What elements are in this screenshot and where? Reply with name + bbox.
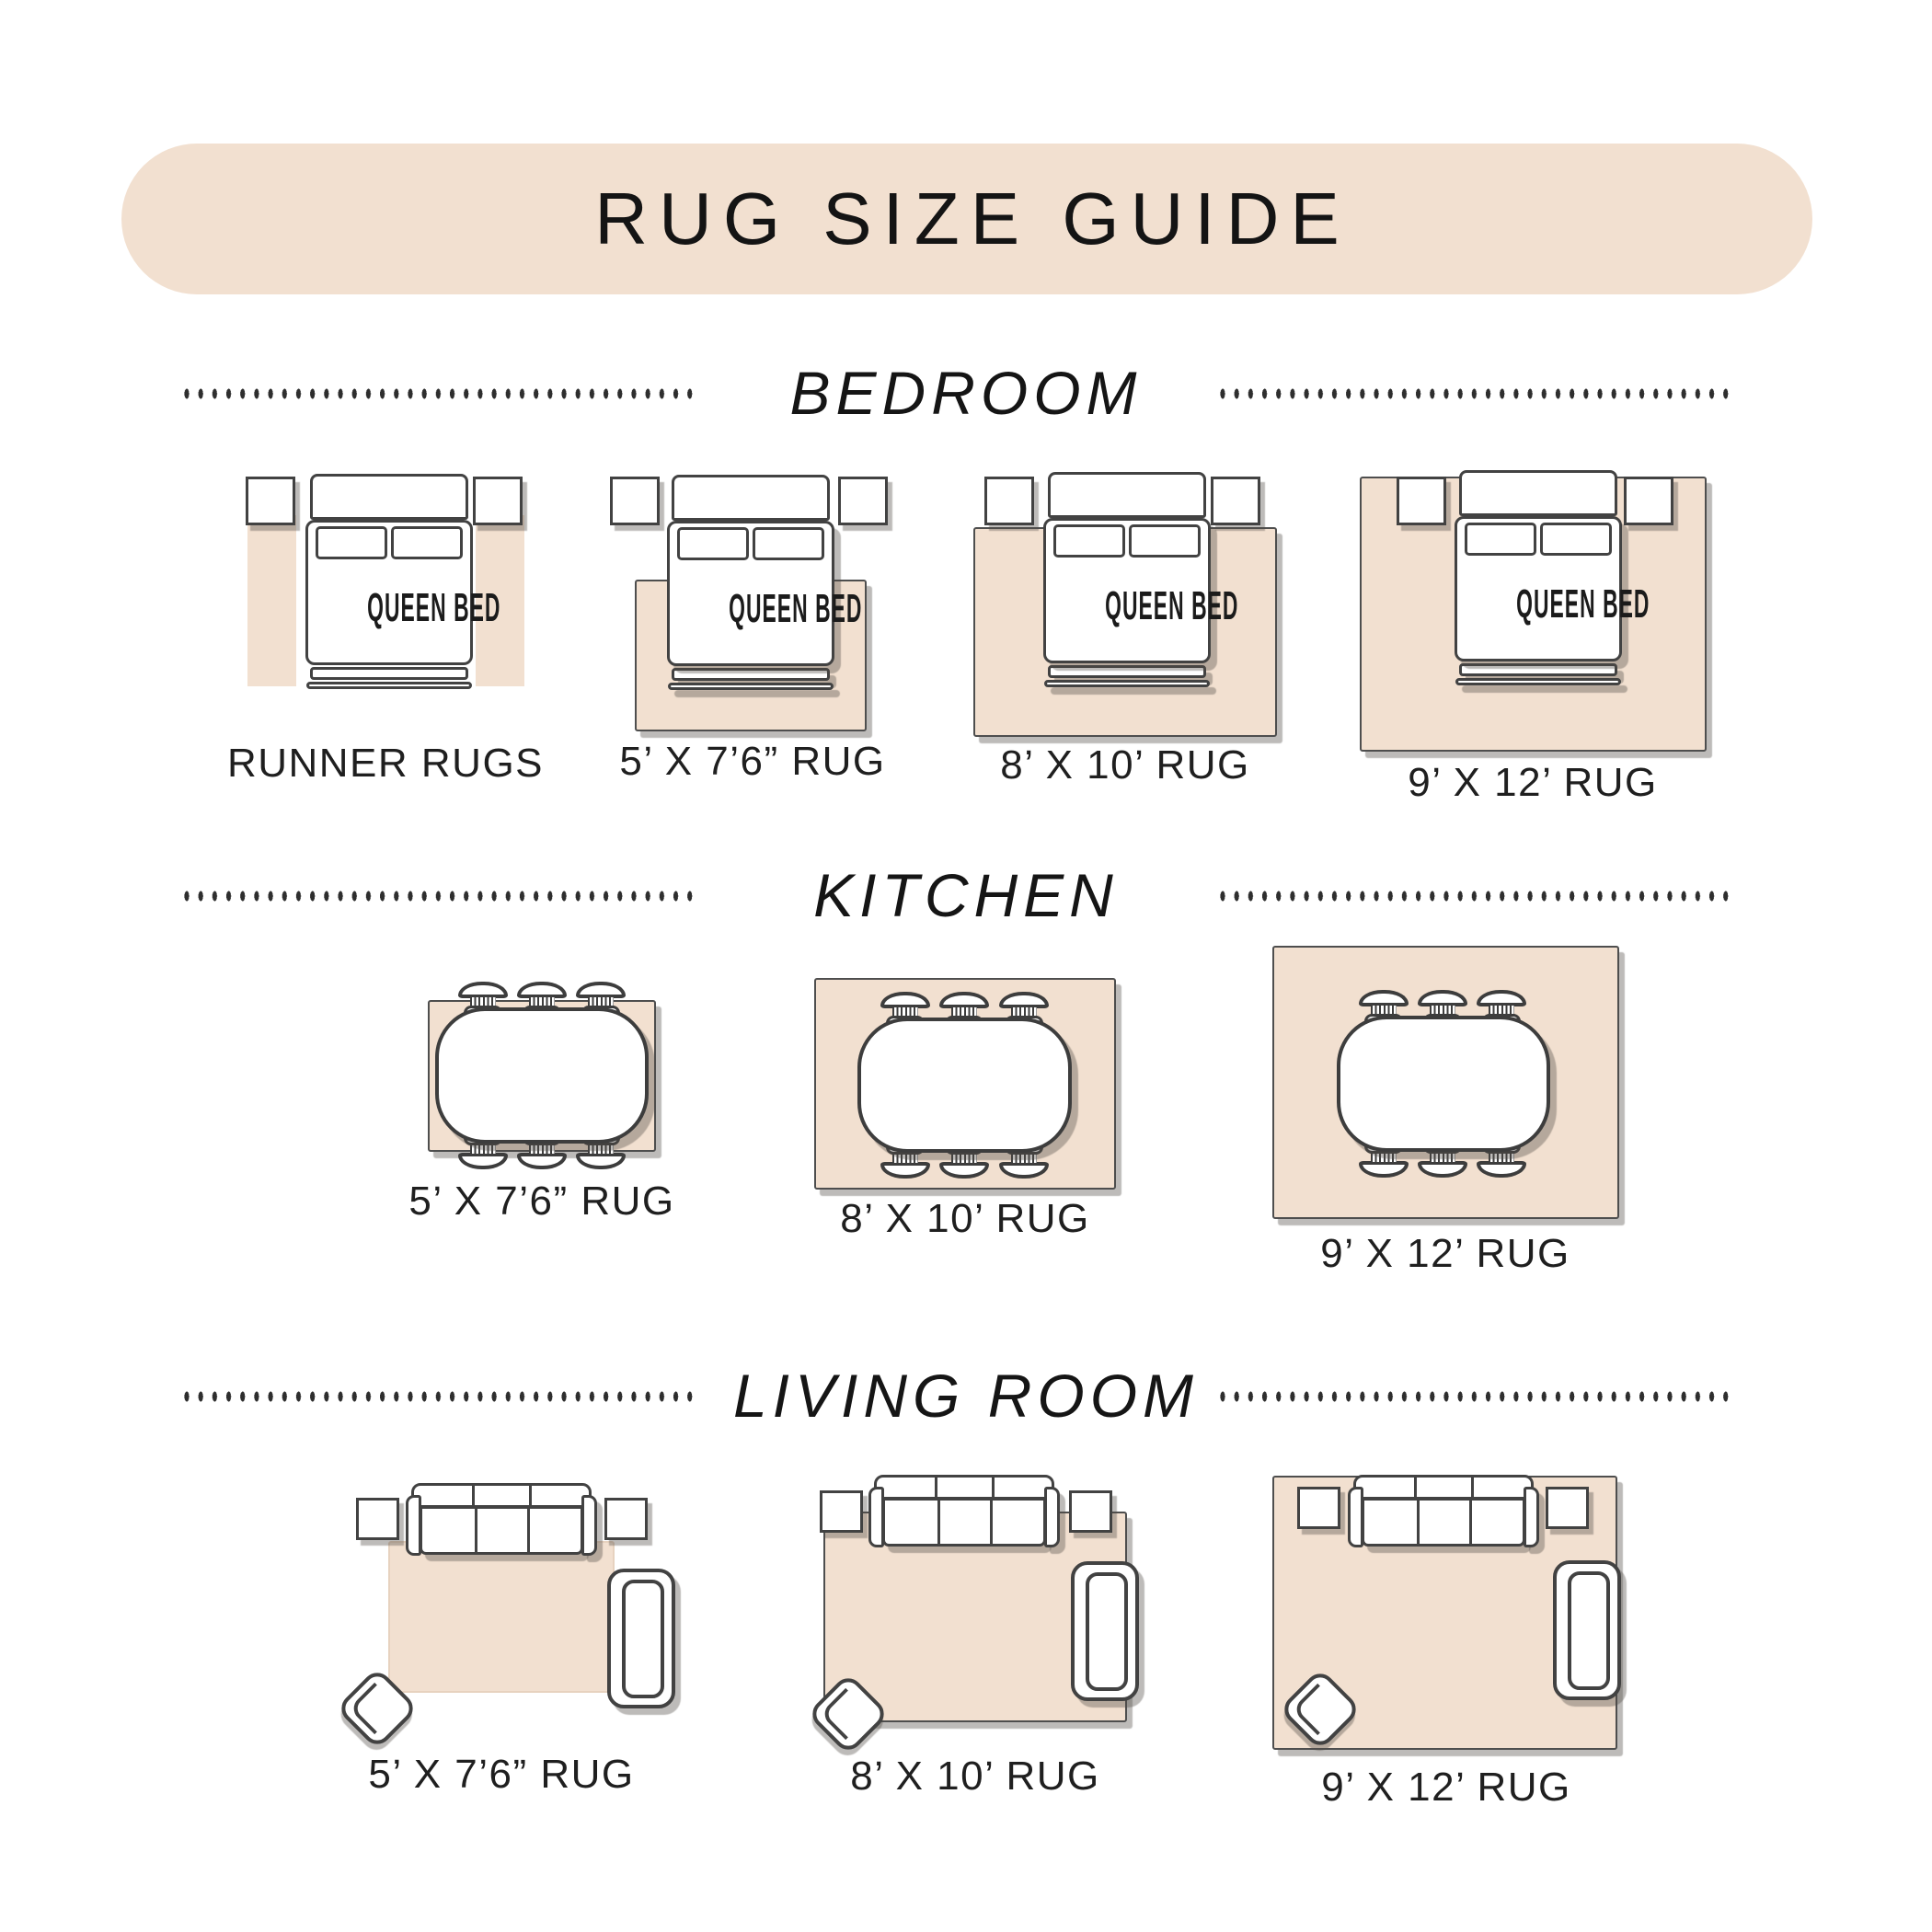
sofa-arm (1524, 1487, 1539, 1547)
queen-bed: QUEEN BED (305, 474, 473, 687)
nightstand (838, 477, 888, 525)
chair-back-icon (999, 1162, 1049, 1179)
chair-back-icon (576, 1153, 626, 1169)
chair-back-icon (1477, 1161, 1526, 1178)
nightstand (473, 477, 523, 525)
chaise-seat (1568, 1571, 1610, 1690)
nightstand (1624, 477, 1673, 525)
rug-size-guide: RUG SIZE GUIDE BEDROOM QUEEN BED RUNNER … (0, 0, 1932, 1932)
bed-pillow (316, 526, 387, 559)
runner-rug-left (247, 515, 296, 686)
chair-back-icon (517, 1153, 567, 1169)
chaise-chair (1553, 1560, 1621, 1700)
sofa-arm (1348, 1487, 1363, 1547)
accent-chair-back (349, 1683, 401, 1735)
dining-table (857, 1018, 1072, 1153)
living-rug-5x76 (388, 1541, 615, 1693)
cushion-divider (990, 1501, 993, 1544)
bed-pillow (753, 527, 824, 560)
chair-back-icon (939, 992, 989, 1008)
nightstand (246, 477, 295, 525)
nightstand (1397, 477, 1446, 525)
bed-pillow (1465, 523, 1536, 556)
cushion-divider (1414, 1478, 1417, 1497)
bed-headboard (1048, 472, 1206, 518)
chair-back-icon (1418, 1161, 1467, 1178)
chair-cushion-icon (588, 1144, 614, 1154)
chair-cushion-icon (1430, 1153, 1455, 1162)
size-label: 5’ X 7’6” RUG (244, 1752, 759, 1798)
chair-back-icon (880, 992, 930, 1008)
section-heading-living-room: LIVING ROOM (699, 1359, 1233, 1432)
chair-back-icon (576, 982, 626, 998)
bed-label: QUEEN BED (667, 586, 834, 632)
dotted-divider-right (1216, 1390, 1733, 1403)
cushion-divider (992, 1478, 995, 1497)
chaise-chair (1071, 1561, 1139, 1701)
chair-back-icon (999, 992, 1049, 1008)
section-heading-kitchen: KITCHEN (699, 858, 1233, 932)
cushion-divider (529, 1486, 532, 1505)
sofa-arm (1044, 1487, 1060, 1547)
bed-footboard-rail (1455, 678, 1621, 685)
sofa-back (411, 1483, 592, 1508)
nightstand (984, 477, 1034, 525)
bed-pillow (1540, 523, 1612, 556)
page-title: RUG SIZE GUIDE (594, 177, 1350, 261)
side-table (1069, 1490, 1112, 1533)
bed-footboard (310, 667, 468, 680)
chair-back-icon (1359, 1161, 1409, 1178)
chair-back-icon (1359, 990, 1409, 1006)
sofa-back (1353, 1475, 1534, 1500)
nightstand (610, 477, 660, 525)
chair-back-icon (517, 982, 567, 998)
sofa-seat (882, 1498, 1046, 1547)
dotted-divider-left (180, 1390, 699, 1403)
side-table (356, 1498, 399, 1540)
chair-back-icon (458, 1153, 508, 1169)
nightstand (1211, 477, 1260, 525)
side-table (604, 1498, 648, 1540)
dotted-divider-left (180, 387, 699, 400)
bed-headboard (1459, 470, 1617, 516)
chair-cushion-icon (1489, 1153, 1514, 1162)
side-table (1297, 1487, 1340, 1529)
dining-table (435, 1007, 649, 1144)
cushion-divider (1471, 1478, 1474, 1497)
size-label: 9’ X 12’ RUG (1188, 1231, 1703, 1277)
cushion-divider (937, 1501, 940, 1544)
chair-cushion-icon (892, 1154, 918, 1163)
chaise-seat (1086, 1572, 1128, 1691)
cushion-divider (475, 1509, 477, 1552)
chair-cushion-icon (470, 1144, 496, 1154)
sofa-seat (1362, 1498, 1525, 1547)
cushion-divider (1417, 1501, 1420, 1544)
cushion-divider (935, 1478, 937, 1497)
sofa-arm (868, 1487, 884, 1547)
dotted-divider-left (180, 890, 699, 903)
bed-footboard-rail (306, 682, 472, 689)
dotted-divider-right (1216, 890, 1733, 903)
chaise-chair (607, 1569, 675, 1708)
bed-footboard-rail (1044, 680, 1210, 687)
chair-cushion-icon (529, 1144, 555, 1154)
chair-back-icon (880, 1162, 930, 1179)
bed-headboard (310, 474, 468, 520)
side-table (1546, 1487, 1589, 1529)
cushion-divider (472, 1486, 475, 1505)
bed-pillow (1129, 524, 1201, 558)
cushion-divider (1469, 1501, 1472, 1544)
sofa-back (874, 1475, 1054, 1500)
chair-cushion-icon (951, 1154, 977, 1163)
sofa-arm (406, 1495, 421, 1556)
size-label: 8’ X 10’ RUG (718, 1754, 1233, 1800)
dining-table (1337, 1016, 1550, 1152)
size-label: 8’ X 10’ RUG (707, 1196, 1223, 1242)
chair-back-icon (458, 982, 508, 998)
chair-back-icon (939, 1162, 989, 1179)
bed-footboard-rail (668, 683, 834, 690)
bed-pillow (391, 526, 463, 559)
bed-footboard (672, 668, 830, 681)
bed-footboard (1048, 665, 1206, 678)
bed-pillow (677, 527, 749, 560)
sofa (406, 1483, 597, 1557)
sofa-seat (420, 1506, 583, 1555)
dotted-divider-right (1216, 387, 1733, 400)
chair-back-icon (1418, 990, 1467, 1006)
sofa (868, 1475, 1060, 1548)
accent-chair-back (820, 1688, 872, 1741)
sofa-arm (581, 1495, 597, 1556)
queen-bed: QUEEN BED (1455, 470, 1622, 684)
chair-cushion-icon (1371, 1153, 1397, 1162)
section-heading-bedroom: BEDROOM (699, 356, 1233, 430)
chair-back-icon (1477, 990, 1526, 1006)
cushion-divider (527, 1509, 530, 1552)
bed-pillow (1053, 524, 1125, 558)
sofa (1348, 1475, 1539, 1548)
bed-footboard (1459, 663, 1617, 676)
side-table (820, 1490, 863, 1533)
chair-cushion-icon (1011, 1154, 1037, 1163)
accent-chair-back (1292, 1684, 1344, 1736)
queen-bed: QUEEN BED (667, 475, 834, 688)
chaise-seat (622, 1580, 664, 1698)
bed-headboard (672, 475, 830, 521)
size-label: 9’ X 12’ RUG (1275, 760, 1790, 806)
title-banner: RUG SIZE GUIDE (121, 144, 1812, 294)
queen-bed: QUEEN BED (1043, 472, 1211, 685)
bed-label: QUEEN BED (1455, 581, 1622, 627)
bed-label: QUEEN BED (305, 585, 473, 631)
bed-label: QUEEN BED (1043, 583, 1211, 629)
size-label: 9’ X 12’ RUG (1189, 1765, 1704, 1811)
